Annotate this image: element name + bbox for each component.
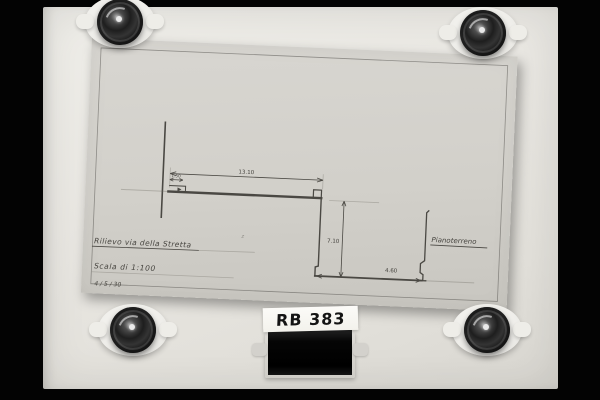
drawing-sheet: 13.10 1.50 7.10 4.60 z Pianoterreno Rili… [81,38,518,311]
catalog-label-text: RB 383 [275,309,345,330]
street-surface-line [168,191,321,198]
film-strip-icon [268,330,352,375]
right-label: Pianoterreno [430,236,487,248]
title-text: Rilievo via della Stretta [94,236,192,249]
dim-upper-small: 1.50 [171,173,181,178]
metal-knob-icon [110,307,156,353]
date-text: 4 / 5 / 30 [94,280,121,288]
washer-tab-icon [443,322,461,337]
scale-text: Scala di 1:100 [94,261,156,273]
stray-mark: z [240,234,244,240]
washer-tab-icon [159,322,177,337]
metal-knob-icon [464,307,510,353]
washer-tab-icon [513,322,531,337]
washer-tab-icon [89,322,107,337]
title-block: Rilievo via della Stretta Scala di 1:100… [90,236,255,294]
right-structure-line [416,210,429,280]
washer-tab-icon [146,14,164,29]
dimension-lines [166,168,425,283]
archival-photo: { "meta": { "catalog_label": "RB 383" },… [0,0,600,400]
technical-section-drawing: 13.10 1.50 7.10 4.60 z Pianoterreno Rili… [81,38,518,311]
catalog-label: RB 383 [263,306,359,332]
wall-line [161,122,165,217]
metal-knob-icon [97,0,143,45]
backing-plate-tab-right [353,343,368,356]
drop-wall-line [315,198,321,276]
metal-knob-icon [460,10,506,56]
backing-plate-tab-left [252,343,267,356]
dim-bottom-span: 4.60 [385,268,398,275]
right-label-text: Pianoterreno [431,236,476,246]
washer-tab-icon [439,25,457,40]
street-profile [118,120,480,282]
dim-vertical-drop: 7.10 [327,238,340,245]
washer-tab-icon [76,14,94,29]
lower-ground-line [315,276,422,281]
washer-tab-icon [509,25,527,40]
photo-board: 13.10 1.50 7.10 4.60 z Pianoterreno Rili… [43,7,558,389]
dim-top-span: 13.10 [238,170,254,177]
